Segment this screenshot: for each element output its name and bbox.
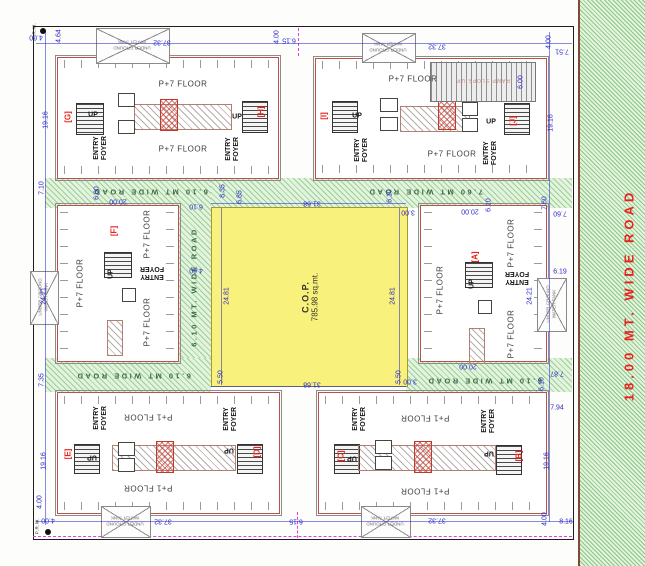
lift-box [462, 102, 478, 116]
lift-box [118, 120, 135, 134]
unit-label: [E] [64, 449, 73, 460]
dimension-label: 4.60 [189, 267, 203, 274]
dimension-label: 4.00 [542, 512, 549, 526]
dimension-label: 7.94 [550, 405, 564, 412]
corridor-hatch [400, 106, 470, 132]
floor-label: P+1 FLOOR [124, 484, 173, 493]
stair-hatch [76, 103, 104, 135]
entry-foyer-label: ENTRY FOYER [354, 138, 370, 162]
dimension-label: 19.16 [544, 452, 551, 470]
dimension-line [221, 208, 222, 385]
dimension-label: 7.51 [555, 48, 569, 55]
entry-foyer-label: ENTRY FOYER [225, 137, 241, 161]
water-tank-label: UNDER GROUND WATER TANK [106, 515, 143, 526]
unit-label: [B] [515, 450, 524, 461]
lift-box [118, 442, 135, 456]
up-label: UP [88, 112, 98, 119]
unit-label: [D] [253, 446, 262, 457]
parking-ticks [60, 212, 68, 352]
lift-box [375, 440, 392, 454]
prw-label: P.R.W. [35, 518, 40, 534]
floor-label: P+7 FLOOR [389, 75, 438, 84]
floor-label: P+7 FLOOR [507, 219, 516, 268]
entry-foyer-label: ENTRY FOYER [93, 406, 109, 430]
lift-box [478, 300, 492, 314]
lift-box [380, 98, 398, 112]
lift-box [118, 458, 135, 472]
parking-ticks [325, 502, 537, 510]
parking-ticks [64, 166, 270, 174]
cop-area-value: 785.98 sq.mt. [310, 273, 319, 321]
unit-label: [H] [257, 106, 266, 117]
entry-foyer-label: ENTRY FOYER [505, 269, 529, 285]
up-label: UP [352, 113, 362, 120]
dimension-label: 20.00 [461, 208, 479, 215]
lift-box [462, 118, 478, 132]
dimension-line [399, 208, 400, 385]
floor-label: P+1 FLOOR [401, 414, 450, 423]
entry-foyer-label: ENTRY FOYER [93, 136, 109, 160]
up-label: UP [469, 279, 476, 289]
column-hatch [438, 100, 456, 130]
parking-ticks [325, 396, 537, 404]
road-name-label: 6.10 MT. WIDE ROAD [190, 227, 199, 347]
dimension-label: 6.85 [237, 190, 244, 204]
dimension-label: 19.16 [548, 114, 555, 132]
main-road-name-label: 18.00 MT. WIDE ROAD [622, 189, 637, 402]
entry-foyer-label: ENTRY FOYER [481, 409, 497, 433]
water-tank-label: UNDER GROUND WATER TANK [369, 41, 406, 52]
prw-marker [45, 529, 51, 535]
entry-foyer-label: ENTRY FOYER [483, 141, 499, 165]
dimension-label: 6.10 [539, 377, 546, 391]
floor-label: P+7 FLOOR [436, 266, 445, 315]
up-label: UP [224, 447, 234, 454]
dimension-label: 20.00 [459, 363, 477, 370]
dimension-label: 7.87 [550, 370, 564, 377]
road-name-label: 6.10 MT WIDE ROAD [92, 188, 208, 197]
cop-title: C.O.P. [300, 273, 310, 321]
dimension-label: 4.00 [29, 34, 43, 41]
dimension-label: 6.19 [553, 269, 567, 276]
dimension-label: 24.21 [527, 287, 534, 305]
dimension-label: 8.35 [220, 184, 227, 198]
cop-open-plot-area: C.O.P. 785.98 sq.mt. [211, 207, 408, 387]
column-hatch [160, 99, 178, 131]
dimension-label: 7.60 [553, 210, 567, 217]
floor-label: P+7 FLOOR [159, 80, 208, 89]
dimension-label: 7.10 [39, 181, 46, 195]
plot-dashed-line-gap-top [298, 28, 299, 56]
dimension-label: 6.15 [289, 518, 303, 525]
dimension-label: 24.21 [41, 287, 48, 305]
dimension-label: 37.32 [428, 43, 446, 50]
floor-label: P+7 FLOOR [428, 150, 477, 159]
floor-label: P+7 FLOOR [143, 210, 152, 259]
site-plan-sheet: C.O.P. 785.98 sq.mt. P+7 FLOORP+7 FLOORP… [0, 0, 645, 566]
unit-label: [F] [110, 226, 119, 236]
parking-ticks [64, 396, 270, 404]
dimension-label: 7.60 [542, 196, 549, 210]
unit-label: [G] [64, 111, 73, 123]
dimension-label: 20.00 [109, 198, 127, 205]
road-name-label: 6.10 MT WIDE ROAD [426, 377, 542, 386]
column-hatch [414, 441, 432, 473]
dimension-label: 8.16 [559, 519, 573, 526]
floor-label: P+7 FLOOR [507, 310, 516, 359]
water-tank-label: UNDER GROUND WATER TANK [366, 515, 403, 526]
corridor-hatch [469, 328, 485, 364]
dimension-label: 19.16 [43, 111, 50, 129]
dimension-label: 4.00 [41, 517, 55, 524]
up-label: UP [108, 269, 115, 279]
up-label: UP [486, 119, 496, 126]
dimension-label: 6.00 [518, 75, 525, 89]
floor-label: P+7 FLOOR [143, 298, 152, 347]
dimension-label: 4.00 [546, 35, 553, 49]
road-name-label: 6.10 MT WIDE ROAD [75, 372, 191, 381]
dimension-label: 4.00 [37, 495, 44, 509]
parking-ticks [64, 502, 270, 510]
floor-label: P+7 FLOOR [159, 145, 208, 154]
corridor-hatch [107, 320, 123, 356]
dimension-label: 3.00 [401, 209, 415, 216]
up-label: UP [232, 114, 242, 121]
column-hatch [156, 441, 174, 473]
dimension-label: 6.00 [94, 186, 101, 200]
dimension-label: 5.50 [218, 370, 225, 384]
dimension-label: 4.64 [56, 29, 63, 43]
floor-label: P+7 FLOOR [76, 259, 85, 308]
dimension-label: 24.81 [390, 287, 397, 305]
up-label: UP [347, 455, 357, 462]
up-label: UP [484, 450, 494, 457]
unit-label: [A] [471, 251, 480, 262]
dimension-line [549, 32, 550, 522]
entry-foyer-label: ENTRY FOYER [223, 407, 239, 431]
entry-foyer-label: ENTRY FOYER [140, 264, 164, 280]
unit-label: [C] [337, 450, 346, 461]
dimension-label: 24.81 [224, 287, 231, 305]
corridor-hatch [134, 104, 232, 130]
dimension-label: 5.50 [396, 370, 403, 384]
ramp-label: RAMP SLOPE UP [456, 77, 510, 83]
dimension-label: 37.32 [428, 517, 446, 524]
dimension-label: 19.16 [41, 452, 48, 470]
lift-box [118, 93, 135, 107]
dimension-label: 31.68 [303, 381, 321, 388]
cop-label: C.O.P. 785.98 sq.mt. [300, 273, 319, 321]
dimension-label: 6.10 [387, 189, 394, 203]
dimension-label: 3.00 [403, 378, 417, 385]
plot-dashed-line-gap-bottom [297, 512, 298, 538]
dimension-label: 6.10 [189, 203, 203, 210]
dimension-label: 6.15 [282, 37, 296, 44]
parking-ticks [166, 212, 174, 352]
lift-box [375, 456, 392, 470]
parking-ticks [322, 165, 538, 173]
dimension-label: 31.68 [303, 200, 321, 207]
floor-label: P+1 FLOOR [124, 413, 173, 422]
entry-foyer-label: ENTRY FOYER [352, 407, 368, 431]
lift-box [380, 117, 398, 131]
internal-road-bottom-right [406, 358, 572, 392]
dimension-label: 4.00 [274, 30, 281, 44]
lift-box [122, 288, 136, 302]
dimension-label: 37.32 [154, 518, 172, 525]
unit-label: [J] [509, 116, 518, 126]
unit-label: [I] [320, 112, 329, 120]
water-tank-label: UNDER GROUND WATER TANK [545, 285, 556, 322]
floor-label: P+1 FLOOR [401, 487, 450, 496]
dimension-label: 6.10 [486, 198, 493, 212]
up-label: UP [87, 454, 97, 461]
dimension-label: 37.32 [153, 39, 171, 46]
water-tank-label: UNDER GROUND WATER TANK [113, 39, 150, 50]
parking-ticks [424, 212, 432, 352]
dimension-label: 7.35 [39, 373, 46, 387]
road-name-label: 7.60 MT WIDE ROAD [367, 188, 483, 197]
